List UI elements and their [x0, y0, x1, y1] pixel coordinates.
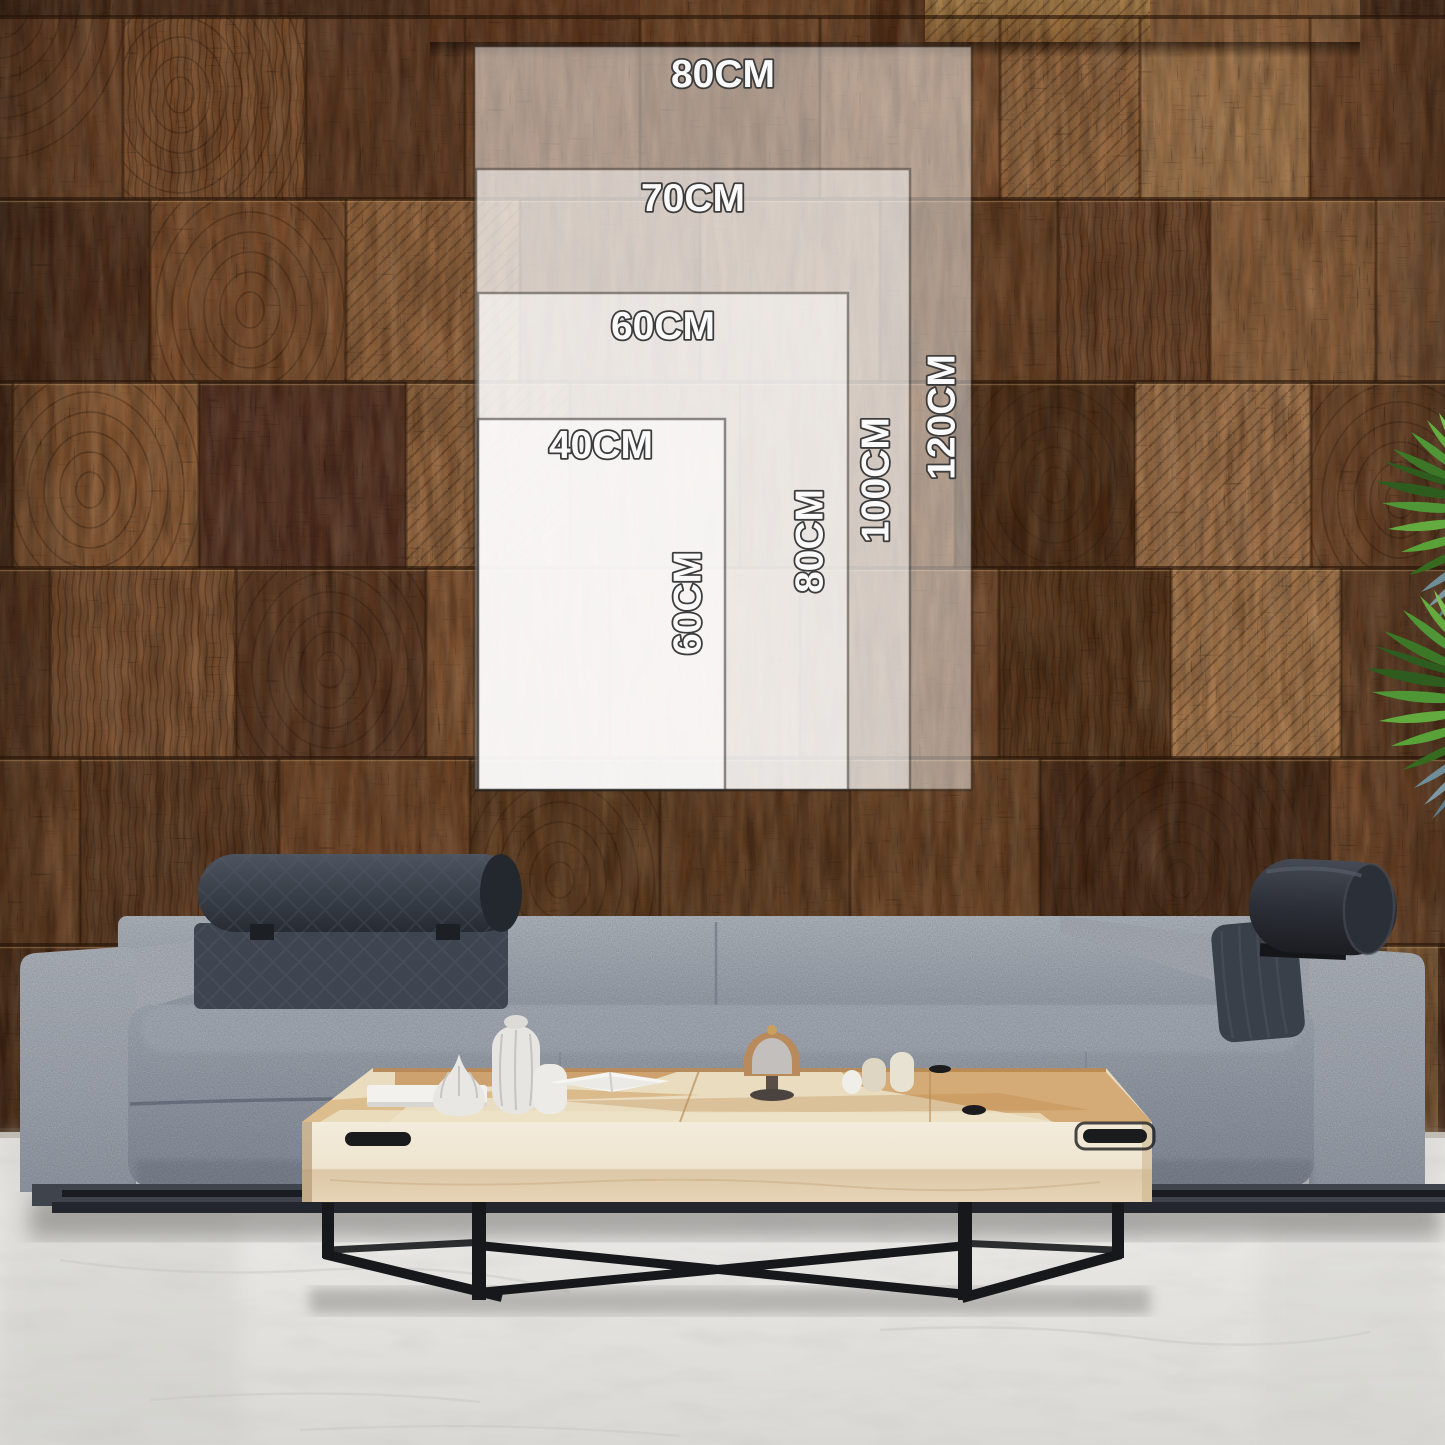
svg-text:120CM: 120CM — [921, 354, 964, 480]
svg-text:100CM: 100CM — [855, 417, 898, 543]
svg-text:80CM: 80CM — [789, 489, 832, 593]
svg-text:40CM: 40CM — [549, 424, 653, 467]
svg-text:60CM: 60CM — [611, 305, 715, 348]
svg-text:70CM: 70CM — [641, 177, 745, 220]
svg-text:60CM: 60CM — [667, 551, 710, 655]
svg-text:80CM: 80CM — [671, 53, 775, 96]
